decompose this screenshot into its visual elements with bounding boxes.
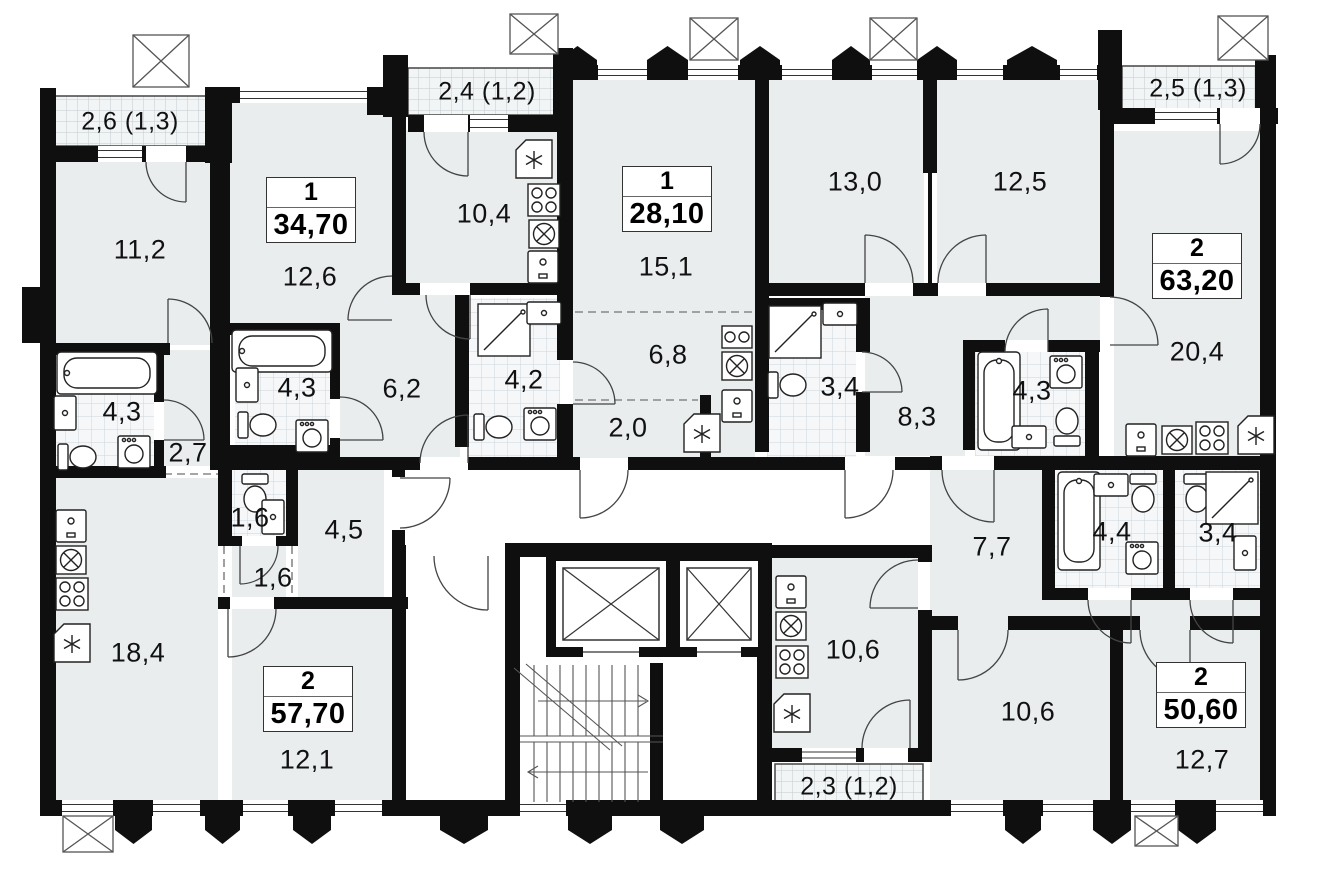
- sink-icon: [722, 390, 752, 422]
- apartment-badge: 2 57,70: [263, 666, 353, 732]
- hob-sink-icon: [722, 352, 752, 380]
- room-area-label: 20,4: [1170, 337, 1225, 368]
- toilet-icon: [768, 372, 806, 398]
- stove-icon: [56, 578, 88, 610]
- room-area-label: 6,2: [382, 374, 421, 405]
- toilet-icon: [474, 414, 512, 440]
- balcony-area-label: 2,6 (1,3): [81, 108, 179, 137]
- bathtub-icon: [57, 352, 157, 394]
- room-area-label: 11,2: [114, 235, 167, 266]
- room-area-label: 18,4: [111, 638, 166, 669]
- stove-icon: [776, 646, 808, 678]
- balcony-area-label: 2,4 (1,2): [438, 78, 536, 107]
- apartment-badge: 1 28,10: [622, 166, 712, 232]
- balcony-area-label: 2,5 (1,3): [1149, 75, 1247, 104]
- room-area-label: 4,5: [324, 515, 363, 546]
- room-area-label: 12,1: [280, 745, 335, 776]
- room-area-label: 13,0: [828, 167, 883, 198]
- apartment-total-area: 34,70: [267, 208, 355, 242]
- room-area-label: 4,2: [504, 365, 543, 396]
- apartment-total-area: 28,10: [623, 197, 711, 231]
- toilet-icon: [1130, 474, 1156, 512]
- hob-sink-icon: [1162, 426, 1192, 454]
- room-area-label: 2,7: [168, 438, 207, 469]
- stove-icon: [528, 184, 560, 216]
- room-area-label: 7,7: [972, 532, 1011, 563]
- apartment-rooms-count: 2: [264, 667, 352, 697]
- room-area-label: 4,3: [277, 373, 316, 404]
- apartment-total-area: 57,70: [264, 697, 352, 731]
- hob-sink-icon: [56, 546, 86, 574]
- room-area-label: 1,6: [253, 563, 292, 594]
- sink-icon: [823, 303, 857, 325]
- room-area-label: 3,4: [1198, 518, 1237, 549]
- apartment-total-area: 63,20: [1153, 264, 1241, 298]
- washing-machine-icon: [524, 408, 556, 440]
- sink-icon: [527, 302, 561, 324]
- room-area-label: 1,6: [230, 503, 269, 534]
- washing-machine-icon: [1050, 356, 1082, 388]
- sink-icon: [1012, 426, 1046, 448]
- sink-icon: [528, 251, 558, 283]
- bathtub-icon: [232, 330, 332, 372]
- room-area-label: 4,3: [102, 397, 141, 428]
- room-area-label: 4,4: [1092, 517, 1131, 548]
- room-area-label: 10,6: [1001, 697, 1056, 728]
- apartment-rooms-count: 1: [267, 178, 355, 208]
- shower-icon: [1206, 472, 1258, 524]
- sink-icon: [1094, 474, 1128, 496]
- fridge-icon: [684, 414, 720, 452]
- hob-sink-icon: [776, 612, 806, 640]
- room-area-label: 12,7: [1175, 745, 1230, 776]
- room-area-label: 6,8: [648, 340, 687, 371]
- washing-machine-icon: [296, 420, 328, 452]
- apartment-total-area: 50,60: [1157, 693, 1245, 727]
- room-area-label: 4,3: [1012, 376, 1051, 407]
- toilet-icon: [1054, 408, 1080, 446]
- sink-icon: [236, 368, 258, 402]
- floor-plan: 2,6 (1,3) 2,4 (1,2) 2,5 (1,3) 2,3 (1,2) …: [0, 0, 1323, 880]
- room-area-label: 8,3: [897, 402, 936, 433]
- fridge-icon: [774, 694, 810, 732]
- shower-icon: [478, 304, 530, 356]
- fridge-icon: [516, 140, 552, 178]
- apartment-rooms-count: 2: [1153, 234, 1241, 264]
- room-area-label: 10,4: [457, 199, 512, 230]
- stove-icon: [722, 326, 752, 348]
- sink-icon: [776, 576, 806, 608]
- room-area-label: 3,4: [820, 372, 859, 403]
- toilet-icon: [238, 412, 276, 438]
- apartment-badge: 1 34,70: [266, 177, 356, 243]
- balcony-area-label: 2,3 (1,2): [800, 773, 898, 802]
- stairs-icon: [514, 664, 663, 802]
- sink-icon: [54, 396, 76, 430]
- sink-icon: [1126, 424, 1156, 456]
- stove-icon: [1196, 422, 1228, 454]
- apartment-badge: 2 50,60: [1156, 662, 1246, 728]
- washing-machine-icon: [118, 436, 150, 468]
- toilet-icon: [58, 444, 96, 470]
- room-area-label: 15,1: [639, 252, 694, 283]
- hob-sink-icon: [529, 220, 559, 248]
- fridge-icon: [54, 624, 90, 662]
- apartment-rooms-count: 1: [623, 167, 711, 197]
- fridge-icon: [1238, 416, 1274, 454]
- room-area-label: 12,6: [283, 262, 338, 293]
- room-area-label: 12,5: [993, 167, 1048, 198]
- elevator-icon: [551, 556, 763, 658]
- room-area-label: 10,6: [826, 635, 881, 666]
- room-area-label: 2,0: [608, 413, 647, 444]
- apartment-rooms-count: 2: [1157, 663, 1245, 693]
- sink-icon: [56, 510, 86, 542]
- shower-icon: [769, 306, 821, 358]
- apartment-badge: 2 63,20: [1152, 233, 1242, 299]
